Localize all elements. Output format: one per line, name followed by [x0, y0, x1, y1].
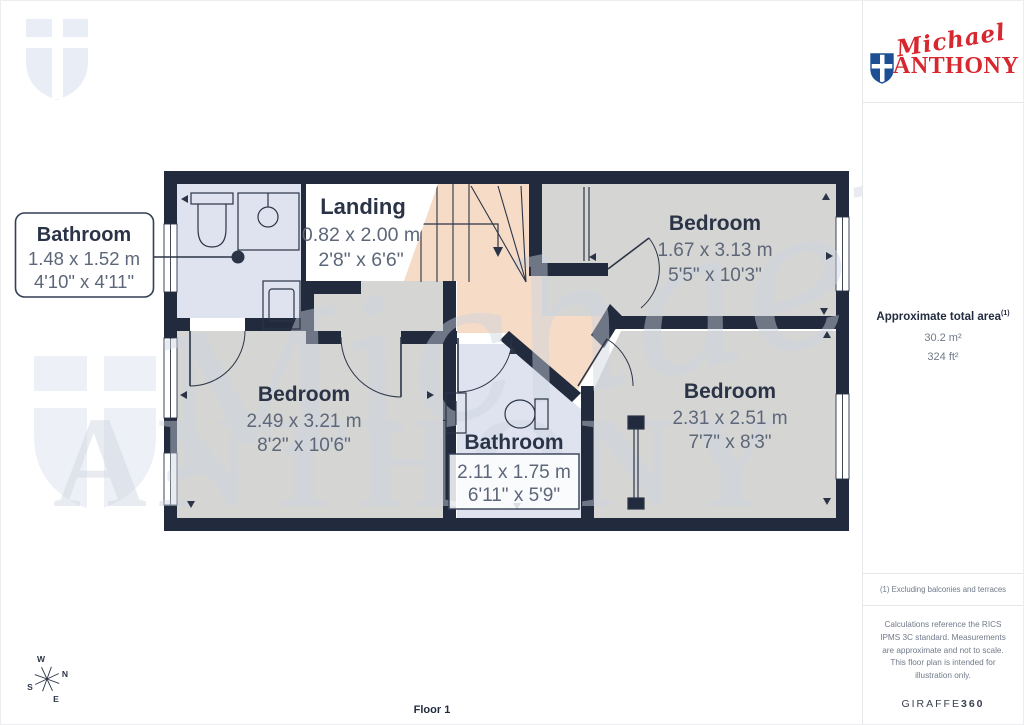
legal-disclaimer: Calculations reference the RICS IPMS 3C … — [863, 605, 1023, 725]
ensuite-imperial: 4'10" x 4'11" — [34, 271, 134, 292]
bedroom-tr-name: Bedroom — [669, 212, 761, 235]
area-title: Approximate total area(1) — [863, 310, 1023, 323]
bedroom-tr-metric: 1.67 x 3.13 m — [657, 240, 772, 261]
compass-n: N — [62, 669, 68, 679]
provider-logo: GIRAFFE360 — [875, 696, 1011, 712]
ensuite-metric: 1.48 x 1.52 m — [28, 248, 140, 269]
bathroom-main-imperial: 6'11" x 5'9" — [468, 485, 560, 506]
agency-name-text: ANTHONY — [893, 53, 1019, 80]
compass-w: W — [37, 654, 46, 664]
callout-anchor-dot — [232, 251, 245, 264]
agency-logo: Michael ANTHONY — [863, 1, 1023, 103]
sidebar: Michael ANTHONY Approximate total area(1… — [862, 1, 1023, 725]
bedroom-tr-imperial: 5'5" x 10'3" — [668, 265, 762, 286]
area-summary: Approximate total area(1) 30.2 m² 324 ft… — [863, 103, 1023, 573]
bathroom-main-metric: 2.11 x 1.75 m — [457, 462, 571, 483]
compass-s: S — [27, 682, 33, 692]
bedroom-left-name: Bedroom — [258, 383, 350, 406]
bedroom-left-metric: 2.49 x 3.21 m — [246, 411, 361, 432]
floorplan-drawing: Michael ANTHONY — [1, 1, 863, 725]
floor-caption: Floor 1 — [1, 704, 863, 716]
watermark-shield-top-left — [26, 19, 88, 100]
area-footnote-marker: (1) — [1001, 310, 1010, 317]
disclaimer-text: Calculations reference the RICS IPMS 3C … — [875, 619, 1011, 683]
landing-name: Landing — [320, 194, 406, 219]
landing-imperial: 2'8" x 6'6" — [318, 249, 403, 271]
ensuite-name: Bathroom — [37, 224, 131, 246]
area-ft2: 324 ft² — [863, 351, 1023, 363]
agency-shield-icon — [870, 53, 894, 89]
bedroom-br-imperial: 7'7" x 8'3" — [688, 432, 771, 453]
floorplan-page: Michael ANTHONY — [0, 0, 1024, 725]
compass-e: E — [53, 694, 59, 704]
bedroom-br-metric: 2.31 x 2.51 m — [672, 408, 787, 429]
footnote: (1) Excluding balconies and terraces — [863, 573, 1023, 605]
bathroom-main-name: Bathroom — [464, 431, 563, 454]
area-m2: 30.2 m² — [863, 332, 1023, 344]
bedroom-br-name: Bedroom — [684, 380, 776, 403]
landing-metric: 0.82 x 2.00 m — [302, 224, 420, 246]
compass: W N S E — [27, 654, 68, 704]
bedroom-left-imperial: 8'2" x 10'6" — [257, 435, 351, 456]
